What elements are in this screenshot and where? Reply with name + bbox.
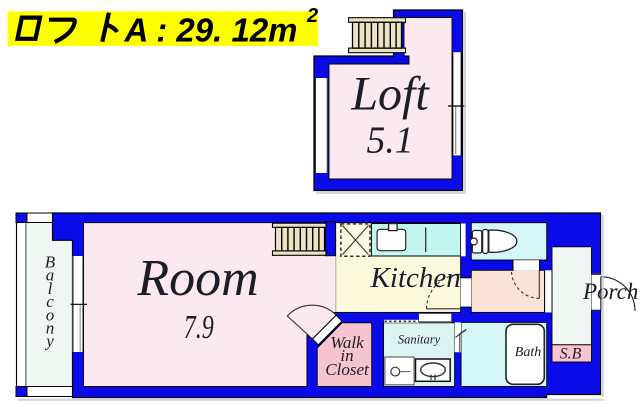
svg-text:Porch: Porch xyxy=(582,279,638,304)
svg-text:Room: Room xyxy=(136,250,258,307)
svg-text:A : 29. 12m: A : 29. 12m xyxy=(124,12,298,49)
svg-text:Bath: Bath xyxy=(515,345,541,360)
svg-text:2: 2 xyxy=(306,5,318,27)
svg-text:7.9: 7.9 xyxy=(184,309,214,346)
svg-text:y: y xyxy=(44,332,54,351)
svg-text:Kitchen: Kitchen xyxy=(370,262,461,294)
svg-text:Closet: Closet xyxy=(325,360,370,379)
svg-text:Loft: Loft xyxy=(350,68,430,121)
svg-text:5.1: 5.1 xyxy=(367,120,414,162)
svg-text:S.B: S.B xyxy=(560,346,582,363)
svg-text:Sanitary: Sanitary xyxy=(398,333,441,347)
